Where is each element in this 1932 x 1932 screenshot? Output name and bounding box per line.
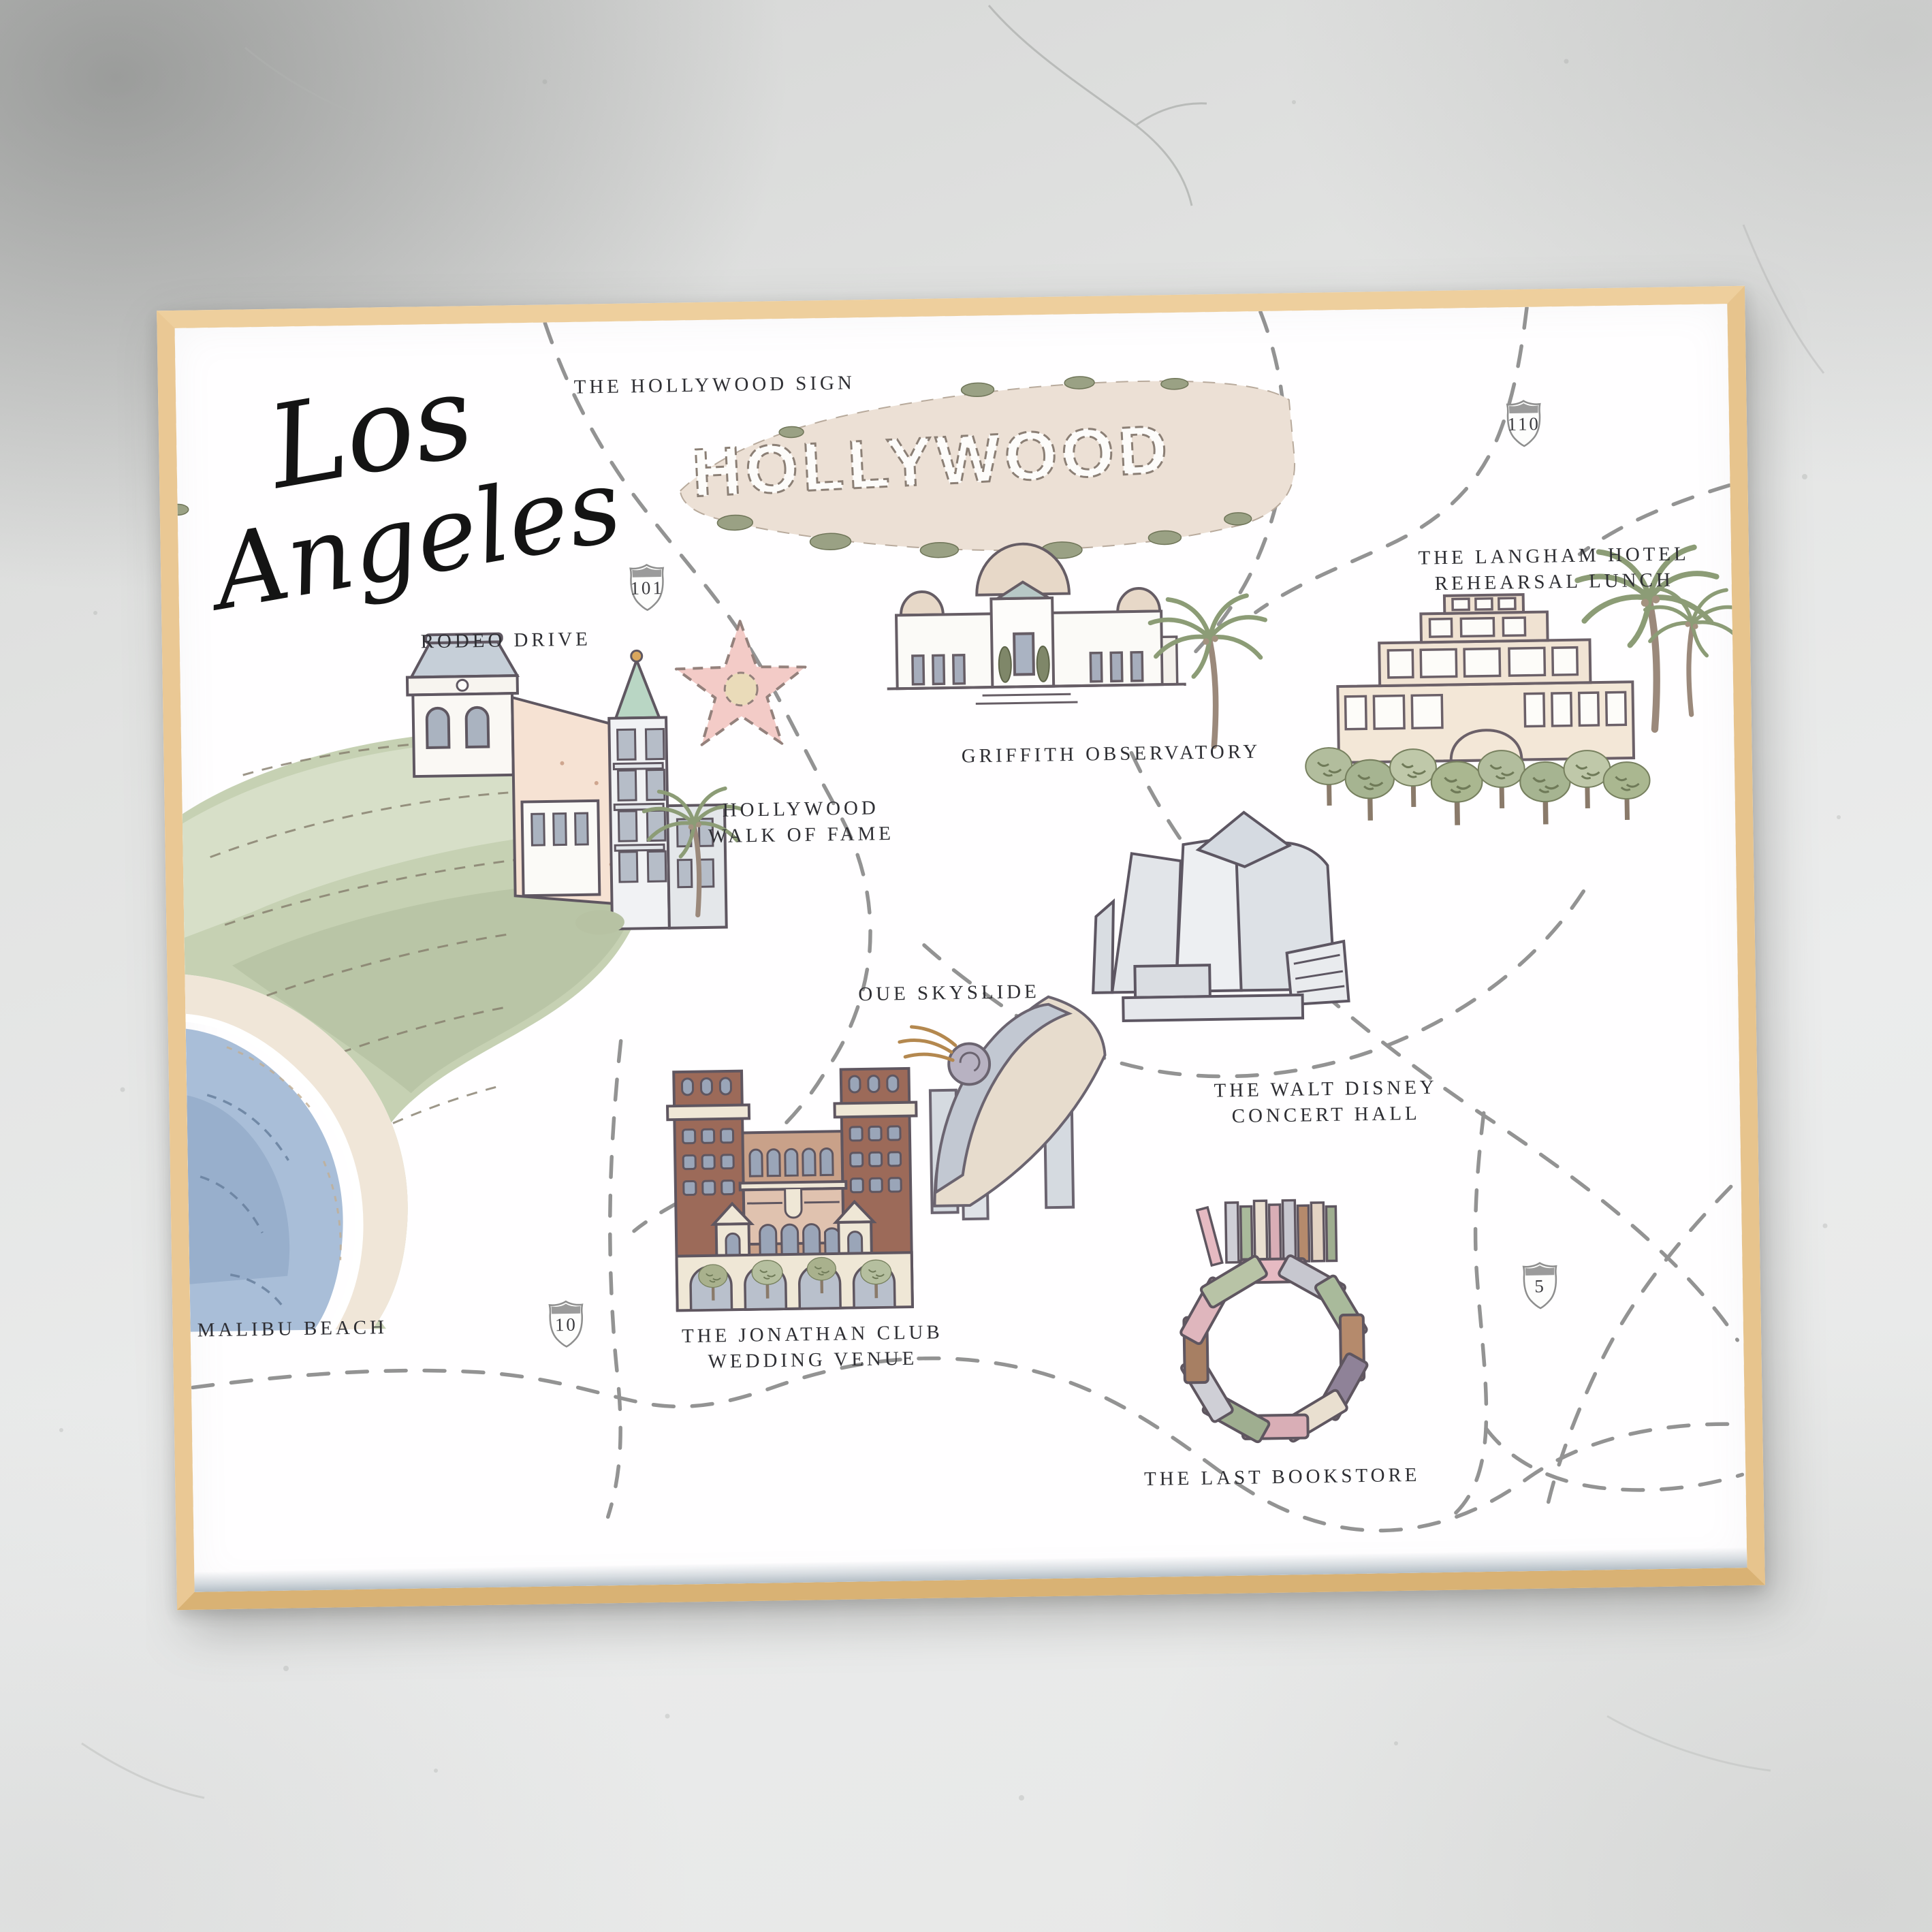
- picture-frame: HOLLYWOOD: [157, 286, 1765, 1610]
- illustration-disney-hall: [1090, 811, 1349, 1022]
- label-last-bookstore: THE LAST BOOKSTORE: [1144, 1464, 1421, 1490]
- label-disney-line1: THE WALT DISNEY: [1214, 1077, 1438, 1102]
- label-walk-of-fame-line2: WALK OF FAME: [708, 823, 895, 847]
- highway-shield-10: 10: [550, 1301, 583, 1347]
- label-hollywood-sign: THE HOLLYWOOD SIGN: [573, 372, 855, 398]
- highway-shield-110: 110: [1507, 400, 1540, 446]
- shield-number-101: 101: [630, 577, 664, 599]
- label-disney-line2: CONCERT HALL: [1232, 1103, 1421, 1127]
- label-langham-line2: REHEARSAL LUNCH: [1435, 569, 1674, 595]
- highway-shield-5: 5: [1523, 1263, 1557, 1308]
- label-malibu-beach: MALIBU BEACH: [197, 1316, 387, 1341]
- shield-number-110: 110: [1507, 413, 1540, 434]
- label-walk-of-fame-line1: HOLLYWOOD: [723, 797, 879, 821]
- label-jonathan-line1: THE JONATHAN CLUB: [682, 1321, 943, 1347]
- map-title: Los Angeles: [195, 346, 631, 635]
- label-jonathan-line2: WEDDING VENUE: [708, 1348, 917, 1373]
- illustration-griffith-observatory: [885, 541, 1186, 705]
- label-langham-line1: THE LANGHAM HOTEL: [1418, 543, 1690, 569]
- label-rodeo-drive: RODEO DRIVE: [420, 628, 591, 652]
- shield-number-10: 10: [555, 1314, 577, 1335]
- illustration-oue-skyslide: [899, 996, 1107, 1220]
- highway-shield-101: 101: [630, 565, 664, 610]
- map-print: HOLLYWOOD: [175, 304, 1747, 1592]
- standing-books: [1197, 1200, 1337, 1266]
- label-griffith-observatory: GRIFFITH OBSERVATORY: [962, 741, 1261, 767]
- shield-number-5: 5: [1534, 1276, 1546, 1296]
- illustration-walk-of-fame-star: [676, 620, 806, 746]
- label-oue-skyslide: OUE SKYSLIDE: [858, 981, 1040, 1005]
- illustration-last-bookstore: [1177, 1199, 1369, 1444]
- book-ring: [1179, 1253, 1369, 1444]
